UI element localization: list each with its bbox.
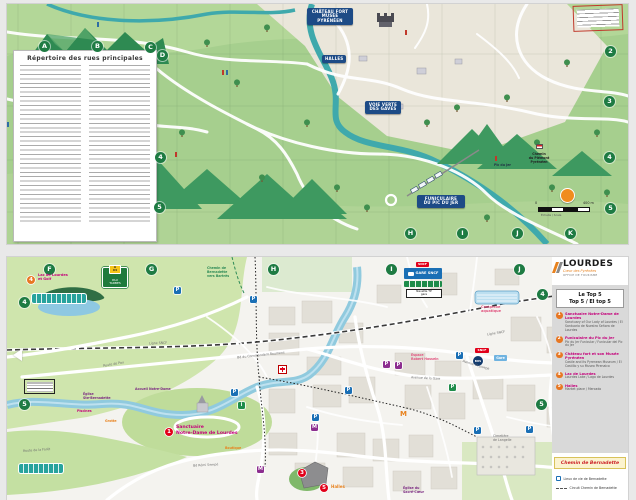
piscines-label: Piscines xyxy=(77,410,92,414)
sncf-chip-2: SNCF xyxy=(475,348,489,353)
top5-item: 4 Lac de Lourdes Lourdes Lake / Lago de … xyxy=(556,372,624,380)
marker-5: 5 xyxy=(320,484,328,492)
legend-bernadette-circuit: Circuit Chemin de Bernadette xyxy=(556,486,617,490)
cgrid-l4: 4 xyxy=(19,297,30,308)
grid-d: D xyxy=(157,50,168,61)
marker-4: 4 xyxy=(27,276,35,284)
scale-end: 400 m xyxy=(583,201,594,205)
complexe-label: Complexe aquatique xyxy=(481,305,501,313)
lake-panorama-strip xyxy=(32,294,86,303)
marker-1: 1 xyxy=(165,428,173,436)
marche-m-icon: M xyxy=(400,410,407,418)
grid-i: I xyxy=(457,228,468,239)
cgrid-l5: 5 xyxy=(19,399,30,410)
info-panel: LOURDES Cœur des Pyrénées Office de Tour… xyxy=(552,257,628,500)
logo-slashes-icon xyxy=(554,262,560,273)
publisher-logo xyxy=(573,4,624,32)
cimetiere-label: Cimetière de Langelle xyxy=(493,435,511,443)
lourdes-logo: LOURDES Cœur des Pyrénées Office de Tour… xyxy=(552,257,628,279)
museum-icon: M xyxy=(257,466,264,473)
grid-r2: 2 xyxy=(605,46,616,57)
chateau-fort-banner: Château Fort Musée Pyrénéen xyxy=(307,8,353,25)
grid-h: H xyxy=(405,228,416,239)
accueil-label: Accueil Notre-Dame xyxy=(135,388,171,392)
legend-bernadette-sites: Lieux de vie de Bernadette xyxy=(556,476,607,481)
highway-arrow-icon xyxy=(7,349,22,361)
sanctuary-lawn xyxy=(122,388,272,456)
street-ligne-sncf-1: Ligne SNCF xyxy=(149,341,167,346)
parking-icon: P xyxy=(526,426,533,433)
info-icon: i xyxy=(238,402,245,409)
grid-b: B xyxy=(92,41,103,52)
grid-a: A xyxy=(39,41,50,52)
grid-m4: 4 xyxy=(155,152,166,163)
street-index-panel: Répertoire des rues principales xyxy=(13,50,157,242)
top5-panel: Le Top 5 Top 5 / El top 5 1 Sanctuaire N… xyxy=(552,285,628,453)
screenshot-stage: Répertoire des rues principales Château … xyxy=(0,0,636,500)
halles-label: Halles xyxy=(331,485,345,490)
parking-icon: P xyxy=(174,287,181,294)
marker-3: 3 xyxy=(298,469,306,477)
parking-icon: P xyxy=(474,427,481,434)
gare-sncf-box: GARE SNCF xyxy=(404,268,442,279)
cgrid-h: H xyxy=(268,264,279,275)
parking-icon: P xyxy=(345,387,352,394)
castle-icon xyxy=(377,13,394,27)
funiculaire-banner: Funiculaire du Pic du Jer xyxy=(417,195,465,208)
grid-r3: 3 xyxy=(604,96,615,107)
scale-bar xyxy=(538,207,590,212)
city-map-art xyxy=(7,257,628,500)
hospital-cross-icon xyxy=(278,365,287,374)
chemin-piemont-label: Chemin du Piémont Pyrénéen xyxy=(520,134,558,165)
grid-r5: 5 xyxy=(605,203,616,214)
bartres-label: Chemin de Bernadette vers Bartrès xyxy=(207,267,229,279)
grid-r4: 4 xyxy=(604,152,615,163)
grid-m5: 5 xyxy=(154,202,165,213)
piemont-flag-icon xyxy=(536,144,543,149)
pic-du-jer-label: Pic du Jer xyxy=(494,164,511,168)
cgrid-g: G xyxy=(146,264,157,275)
parking-icon: P xyxy=(250,296,257,303)
south-panorama-strip xyxy=(19,464,63,473)
info-placard xyxy=(24,379,55,394)
parking-icon: P xyxy=(456,352,463,359)
poi-orange-icon xyxy=(560,188,575,203)
sacre-coeur-label: Église du Sacré-Cœur xyxy=(403,487,424,495)
aquatic-centre-building xyxy=(475,291,519,304)
bus-bays-box xyxy=(404,281,442,287)
overview-map[interactable]: Répertoire des rues principales Château … xyxy=(7,4,628,244)
grid-c: C xyxy=(145,42,156,53)
boutique-label: Boutique xyxy=(225,447,241,451)
parking-relais-icon: P xyxy=(449,384,456,391)
halles-banner: Halles xyxy=(322,55,346,63)
ste-bernadette-label: Église Ste-Bernadette xyxy=(83,393,111,401)
covered-parking-icon: P xyxy=(395,362,402,369)
a64-sign: A 64 PAU TARBES xyxy=(102,267,128,288)
grid-j: J xyxy=(512,228,523,239)
chemin-bernadette-box: Chemin de Bernadette xyxy=(554,457,626,469)
sncf-chip-1: SNCF xyxy=(416,262,429,267)
street-index-column-2 xyxy=(89,65,150,225)
navette-box: Navette TP gare xyxy=(406,289,442,298)
dashed-line-icon xyxy=(556,488,567,489)
top5-item: 2 Funiculaire du Pic du Jer Pic du Jer F… xyxy=(556,336,624,348)
hossein-label: Espace Robert Hossein xyxy=(411,354,438,362)
logo-subtitle: Office de Tourisme xyxy=(563,273,613,277)
street-index-column-1 xyxy=(20,65,81,225)
lac-label: Lac de Lourdes et Golf xyxy=(38,273,68,281)
grid-k: K xyxy=(565,228,576,239)
cgrid-i: I xyxy=(386,264,397,275)
a64-chip: A 64 xyxy=(109,265,121,274)
top5-item: 1 Sanctuaire Notre-Dame de Lourdes Sanct… xyxy=(556,312,624,333)
parking-icon: P xyxy=(312,414,319,421)
grotte-label: Grotte xyxy=(105,420,117,424)
parking-icon: P xyxy=(231,389,238,396)
museum-icon: M xyxy=(311,424,318,431)
cgrid-r5: 5 xyxy=(536,399,547,410)
train-icon xyxy=(408,272,414,276)
top5-title: Le Top 5 Top 5 / El top 5 xyxy=(556,289,624,308)
logo-name: LOURDES xyxy=(563,260,613,269)
cemetery xyxy=(477,437,535,475)
gare-chip: Gare xyxy=(494,355,507,361)
scale-zero: 0 xyxy=(535,201,537,205)
city-map[interactable]: F G H I J 4 5 4 5 4 Lac de Lourdes et Go… xyxy=(7,257,628,500)
sanctuaire-label: Sanctuaire Notre-Dame de Lourdes xyxy=(176,425,238,436)
top5-item: 3 Château fort et son Musée Pyrénéen Cas… xyxy=(556,352,624,369)
street-index-title: Répertoire des rues principales xyxy=(16,55,154,62)
scale-caption: Échelle / Scale xyxy=(541,213,561,217)
bernadette-site-icon xyxy=(556,476,561,481)
cgrid-r4: 4 xyxy=(537,289,548,300)
covered-parking-icon: P xyxy=(383,361,390,368)
voie-verte-banner: Voie Verte des Gaves xyxy=(365,101,401,114)
top5-item: 5 Halles Market place / Mercado xyxy=(556,384,624,392)
cgrid-j: J xyxy=(514,264,525,275)
